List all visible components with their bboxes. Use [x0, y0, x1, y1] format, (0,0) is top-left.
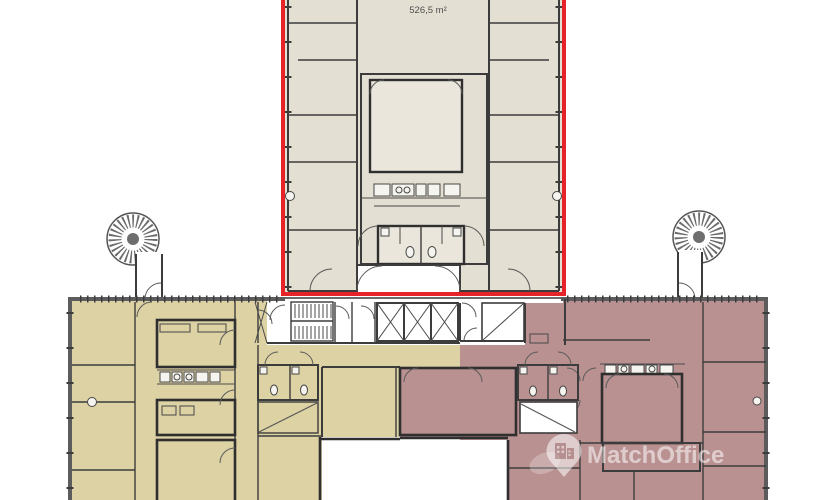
floorplan-image: 526,5 m² MatchOffice: [0, 0, 825, 500]
kitchen-fixtures-upper: [374, 184, 460, 196]
wc-core-upper: [358, 226, 484, 264]
area-label: 526,5 m²: [409, 5, 447, 16]
upper-floor-unit: 526,5 m²: [283, 0, 564, 294]
watermark-text: MatchOffice: [587, 442, 724, 469]
kitchenette-fixtures-right: [605, 365, 673, 374]
kitchenette-fixtures-left: [160, 372, 220, 382]
core-meeting-room: [370, 80, 462, 172]
